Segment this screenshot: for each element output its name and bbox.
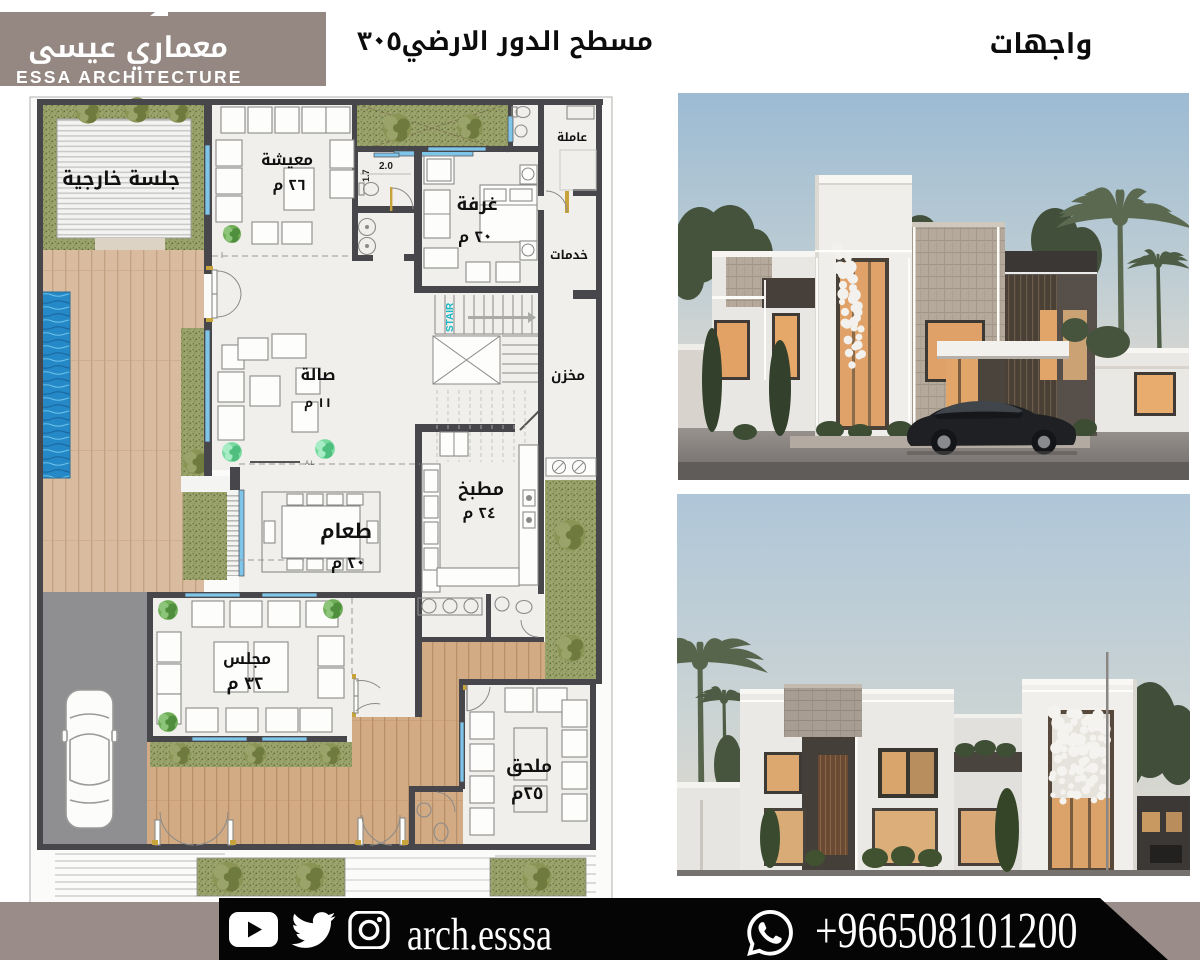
- svg-text:STAIR: STAIR: [445, 302, 456, 332]
- svg-text:2.0: 2.0: [379, 161, 393, 172]
- svg-text:1.7: 1.7: [361, 169, 371, 182]
- svg-text:A.L: A.L: [305, 461, 315, 467]
